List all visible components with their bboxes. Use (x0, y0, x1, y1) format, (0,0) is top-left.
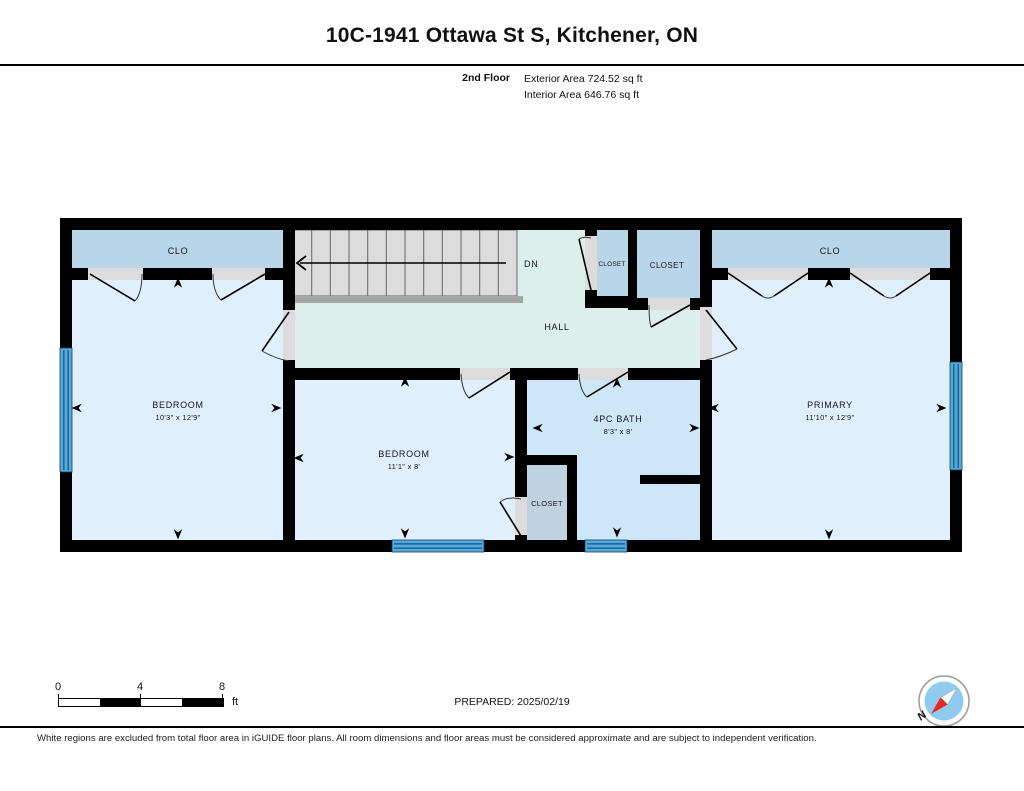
stair-edge-strip (293, 296, 523, 303)
bedroom-mid-dims: 11'1" x 8' (388, 462, 421, 471)
stairs-dn-label: DN (524, 259, 538, 269)
wall-bedroomleft-hall (283, 218, 295, 552)
wall-closet-bath-right (567, 455, 577, 540)
closet-mid-label: CLOSET (650, 261, 684, 270)
clo-left-label: CLO (168, 246, 189, 256)
closet-small-label: CLOSET (598, 261, 625, 268)
bedroom-left-dims: 10'3" x 12'9" (155, 413, 200, 422)
wall-primary-left (700, 218, 712, 552)
bedroom-mid-label: BEDROOM (378, 449, 429, 459)
bath-dims: 8'3" x 8' (604, 427, 633, 436)
opening-clo-right-2 (850, 268, 930, 280)
opening-clo-right-1 (728, 268, 808, 280)
primary-fill (712, 280, 950, 540)
wall-closets-divider (628, 230, 637, 310)
bath-label: 4PC BATH (594, 414, 643, 424)
closet-bath-label: CLOSET (531, 499, 563, 508)
wall-outer-top (60, 218, 962, 230)
scale-tick-8: 8 (219, 681, 225, 693)
window-bottom-bedroom-mid (392, 540, 484, 552)
window-right (950, 362, 962, 470)
primary-label: PRIMARY (807, 400, 853, 410)
primary-dims: 11'10" x 12'9" (806, 413, 855, 422)
opening-closet-small (585, 236, 597, 290)
scale-tick-0: 0 (55, 681, 61, 693)
wall-outer-bottom (60, 540, 962, 552)
hall-label: HALL (544, 322, 569, 332)
scale-tick-4: 4 (137, 681, 143, 693)
clo-right-label: CLO (820, 246, 841, 256)
window-left (60, 348, 72, 472)
floorplan-page: 10C-1941 Ottawa St S, Kitchener, ON 2nd … (0, 0, 1024, 791)
floor-plan-svg: CLO BEDROOM 10'3" x 12'9" DN HALL CLOSET… (0, 0, 1024, 791)
wall-bath-stub (640, 475, 700, 484)
opening-bath (578, 368, 628, 380)
bedroom-mid-fill (295, 380, 515, 540)
prepared-date: PREPARED: 2025/02/19 (0, 696, 1024, 708)
bedroom-left-label: BEDROOM (152, 400, 203, 410)
opening-bedroom-mid (460, 368, 510, 380)
disclaimer-text: White regions are excluded from total fl… (37, 733, 817, 744)
window-bottom-bath (585, 540, 627, 552)
footer-divider (0, 726, 1024, 728)
bedroom-left-fill (72, 280, 283, 540)
